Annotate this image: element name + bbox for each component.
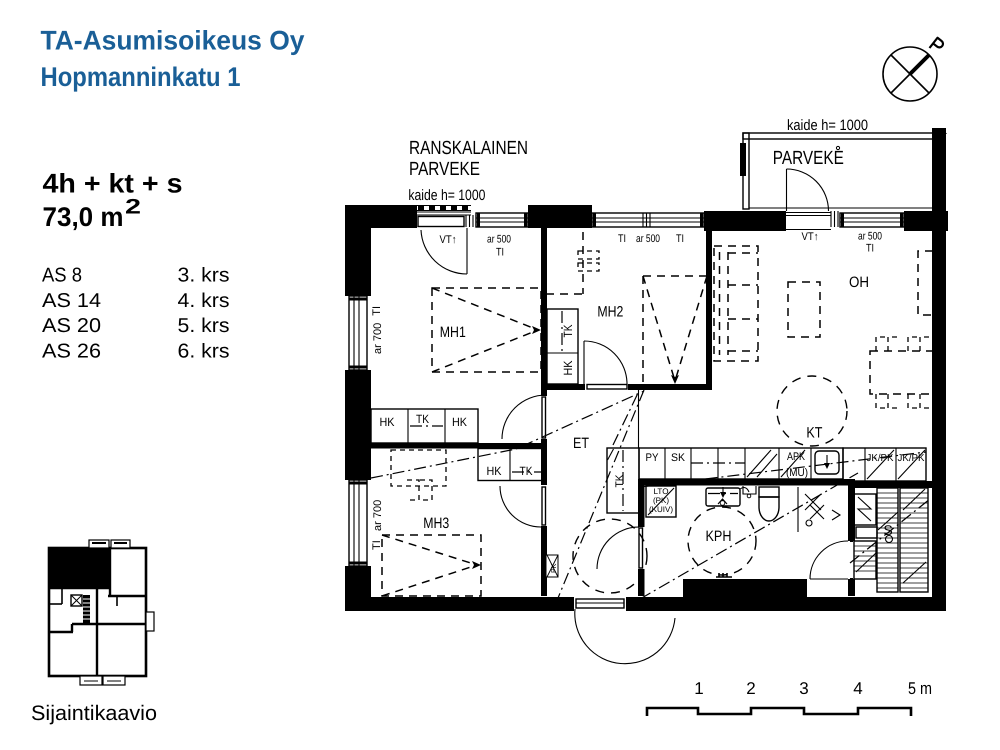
svg-text:ar 700: ar 700	[372, 323, 384, 354]
svg-text:5 m: 5 m	[908, 679, 932, 698]
svg-text:MH2: MH2	[597, 304, 623, 321]
svg-text:HK: HK	[380, 415, 395, 429]
svg-text:S: S	[883, 522, 892, 538]
svg-text:4h + kt + s: 4h + kt + s	[43, 169, 183, 199]
svg-text:VT↑: VT↑	[802, 231, 819, 243]
svg-text:kaide h= 1000: kaide h= 1000	[408, 187, 485, 204]
svg-text:ar 500: ar 500	[487, 234, 511, 246]
svg-text:TI: TI	[371, 306, 383, 316]
svg-text:TI: TI	[371, 540, 383, 550]
svg-text:ar 500: ar 500	[636, 233, 660, 245]
svg-text:HK: HK	[561, 361, 575, 376]
svg-text:ar 700: ar 700	[372, 500, 384, 531]
svg-text:5. krs: 5. krs	[178, 315, 230, 337]
svg-text:OH: OH	[849, 274, 869, 291]
svg-text:TI: TI	[676, 233, 684, 245]
svg-text:(KUIV): (KUIV)	[649, 505, 673, 514]
svg-text:HK: HK	[452, 415, 467, 429]
svg-text:JK/PK: JK/PK	[898, 453, 925, 464]
svg-text:4. krs: 4. krs	[178, 290, 230, 312]
svg-text:1: 1	[694, 679, 703, 698]
svg-text:Hopmanninkatu 1: Hopmanninkatu 1	[41, 62, 241, 92]
svg-text:2: 2	[125, 196, 141, 219]
svg-text:73,0 m: 73,0 m	[43, 202, 124, 232]
svg-text:AS 26: AS 26	[42, 341, 101, 363]
svg-text:MH1: MH1	[440, 324, 466, 341]
svg-text:kaide h= 1000: kaide h= 1000	[787, 117, 868, 134]
svg-text:LTO: LTO	[654, 487, 669, 496]
svg-text:VT↑: VT↑	[440, 234, 457, 246]
svg-text:(PK): (PK)	[653, 496, 669, 505]
svg-text:TA-Asumisoikeus Oy: TA-Asumisoikeus Oy	[41, 26, 305, 56]
svg-text:TK: TK	[614, 474, 626, 488]
svg-text:AS 8: AS 8	[42, 265, 82, 287]
svg-text:TK: TK	[520, 464, 533, 478]
svg-text:RANSKALAINEN: RANSKALAINEN	[409, 138, 528, 159]
svg-text:AS 14: AS 14	[42, 290, 101, 312]
svg-text:JK/PK: JK/PK	[867, 453, 894, 464]
svg-text:PARVEKE: PARVEKE	[409, 159, 480, 180]
svg-text:ar 500: ar 500	[858, 231, 882, 243]
svg-text:TI: TI	[866, 243, 874, 255]
svg-text:3. krs: 3. krs	[178, 265, 230, 287]
svg-text:KPH: KPH	[706, 528, 732, 545]
svg-text:HK: HK	[487, 464, 502, 478]
svg-text:TK: TK	[416, 412, 429, 426]
svg-text:(MU): (MU)	[786, 467, 808, 479]
svg-text:TI: TI	[496, 247, 504, 259]
svg-text:3: 3	[799, 679, 808, 698]
svg-text:PARVEKE: PARVEKE	[773, 148, 844, 169]
svg-text:4: 4	[853, 679, 862, 698]
svg-text:AS 20: AS 20	[42, 315, 101, 337]
svg-text:2: 2	[746, 679, 755, 698]
svg-text:MH3: MH3	[423, 515, 449, 532]
svg-text:ET: ET	[573, 435, 589, 452]
svg-text:Sijaintikaavio: Sijaintikaavio	[31, 702, 157, 725]
svg-text:6. krs: 6. krs	[178, 341, 230, 363]
svg-text:SK: SK	[671, 452, 686, 464]
svg-text:PK: PK	[551, 563, 558, 573]
svg-text:PY: PY	[646, 452, 660, 464]
svg-text:TI: TI	[618, 233, 626, 245]
svg-text:KT: KT	[806, 425, 822, 442]
svg-text:TK: TK	[561, 325, 575, 338]
